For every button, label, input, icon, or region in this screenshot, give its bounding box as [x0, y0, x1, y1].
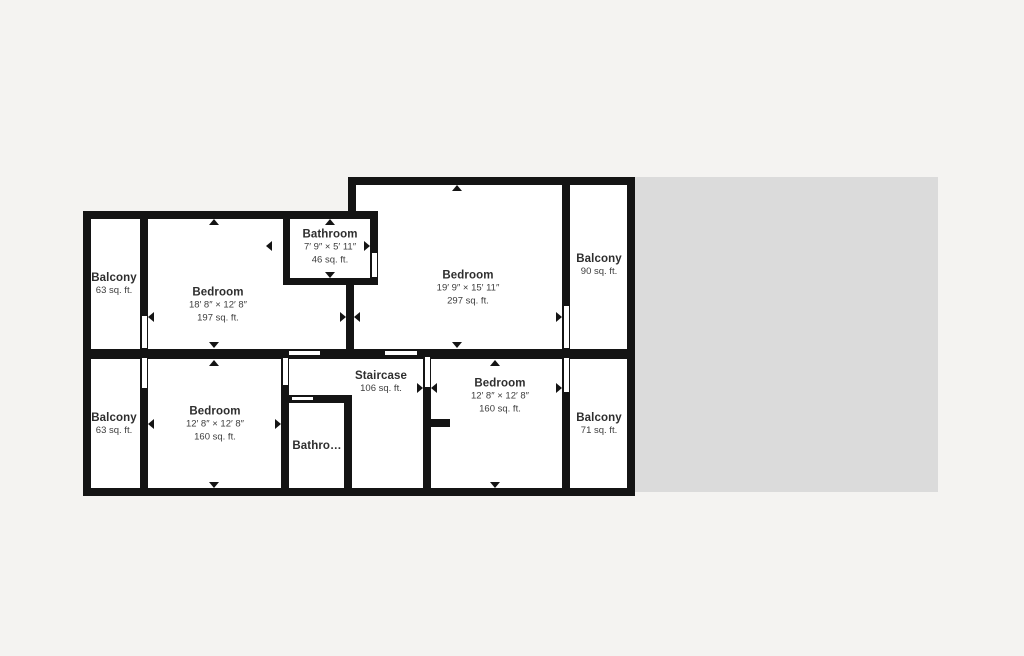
room-area: 71 sq. ft. [576, 425, 621, 438]
dimension-arrow-left-icon [148, 312, 154, 322]
dimension-arrow-right-icon [340, 312, 346, 322]
dimension-arrow-down-icon [490, 482, 500, 488]
room-label-balcony-top-right: Balcony 90 sq. ft. [576, 252, 621, 279]
room-area: 160 sq. ft. [471, 403, 529, 416]
room-label-bedroom-bottom-right: Bedroom 12′ 8″ × 12′ 8″ 160 sq. ft. [471, 377, 529, 416]
door-bedroom-bottom-left [283, 358, 288, 385]
dimension-arrow-down-icon [452, 342, 462, 348]
room-name: Balcony [91, 411, 136, 425]
door-balcony-top-left [142, 316, 147, 348]
dimension-arrow-left-icon [354, 312, 360, 322]
door-balcony-bottom-left [142, 358, 147, 388]
room-name: Bedroom [186, 405, 244, 419]
room-label-balcony-bottom-right: Balcony 71 sq. ft. [576, 411, 621, 438]
adjacent-floor-area [634, 177, 938, 492]
door-bathroom-bottom [292, 397, 313, 401]
wall-top-main-bedroom [348, 177, 635, 185]
dimension-arrow-right-icon [364, 241, 370, 251]
room-label-balcony-bottom-left: Balcony 63 sq. ft. [91, 411, 136, 438]
wall-bathroom-b-right [344, 395, 352, 496]
room-area: 46 sq. ft. [302, 254, 357, 267]
room-label-bedroom-bottom-left: Bedroom 12′ 8″ × 12′ 8″ 160 sq. ft. [186, 405, 244, 444]
wall-stub-bedroom-br [431, 419, 450, 427]
room-area: 63 sq. ft. [91, 425, 136, 438]
door-bathroom-top [372, 253, 377, 277]
room-name: Balcony [576, 411, 621, 425]
floor-fill-right [348, 177, 635, 496]
dimension-arrow-up-icon [490, 360, 500, 366]
dimension-arrow-left-icon [431, 383, 437, 393]
dimension-arrow-up-icon [209, 219, 219, 225]
floorplan-drawing [0, 0, 1024, 656]
room-name: Bathroom [302, 228, 357, 242]
room-dimensions: 7′ 9″ × 5′ 11″ [302, 242, 357, 255]
room-dimensions: 12′ 8″ × 12′ 8″ [186, 419, 244, 432]
room-dimensions: 18′ 8″ × 12′ 8″ [189, 300, 247, 313]
dimension-arrow-right-icon [556, 383, 562, 393]
dimension-arrow-up-icon [209, 360, 219, 366]
room-name: Bedroom [437, 269, 500, 283]
dimension-arrow-down-icon [209, 482, 219, 488]
room-dimensions: 19′ 9″ × 15′ 11″ [437, 283, 500, 296]
door-balcony-bottom-right [564, 358, 569, 392]
dimension-arrow-down-icon [209, 342, 219, 348]
dimension-arrow-down-icon [325, 272, 335, 278]
room-name: Bedroom [471, 377, 529, 391]
room-name: Balcony [91, 271, 136, 285]
window-staircase-top-right [385, 351, 417, 355]
room-name: Staircase [355, 369, 407, 383]
dimension-arrow-left-icon [266, 241, 272, 251]
room-area: 90 sq. ft. [576, 266, 621, 279]
room-name: Bedroom [189, 286, 247, 300]
room-area: 197 sq. ft. [189, 312, 247, 325]
door-bedroom-bottom-right [425, 357, 430, 387]
wall-middle-horizontal [83, 349, 635, 359]
room-name: Balcony [576, 252, 621, 266]
room-label-bedroom-large: Bedroom 19′ 9″ × 15′ 11″ 297 sq. ft. [437, 269, 500, 308]
window-staircase-top-left [289, 351, 320, 355]
wall-outer-right [627, 177, 635, 496]
room-label-bedroom-top-left: Bedroom 18′ 8″ × 12′ 8″ 197 sq. ft. [189, 286, 247, 325]
dimension-arrow-right-icon [556, 312, 562, 322]
dimension-arrow-right-icon [417, 383, 423, 393]
room-area: 297 sq. ft. [437, 295, 500, 308]
room-label-balcony-top-left: Balcony 63 sq. ft. [91, 271, 136, 298]
room-area: 160 sq. ft. [186, 431, 244, 444]
room-label-bathroom-bottom: Bathro… [292, 439, 341, 453]
dimension-arrow-up-icon [452, 185, 462, 191]
room-area: 106 sq. ft. [355, 383, 407, 396]
room-area: 63 sq. ft. [91, 285, 136, 298]
door-balcony-top-right [564, 306, 569, 348]
room-dimensions: 12′ 8″ × 12′ 8″ [471, 391, 529, 404]
dimension-arrow-right-icon [275, 419, 281, 429]
dimension-arrow-left-icon [148, 419, 154, 429]
floorplan-viewport: Balcony 63 sq. ft. Bedroom 18′ 8″ × 12′ … [0, 0, 1024, 656]
wall-outer-bottom [83, 488, 635, 496]
dimension-arrow-up-icon [325, 219, 335, 225]
room-name: Bathro… [292, 439, 341, 453]
wall-bedroom-divider-center [346, 278, 354, 357]
room-label-bathroom-top: Bathroom 7′ 9″ × 5′ 11″ 46 sq. ft. [302, 228, 357, 267]
room-label-staircase: Staircase 106 sq. ft. [355, 369, 407, 396]
